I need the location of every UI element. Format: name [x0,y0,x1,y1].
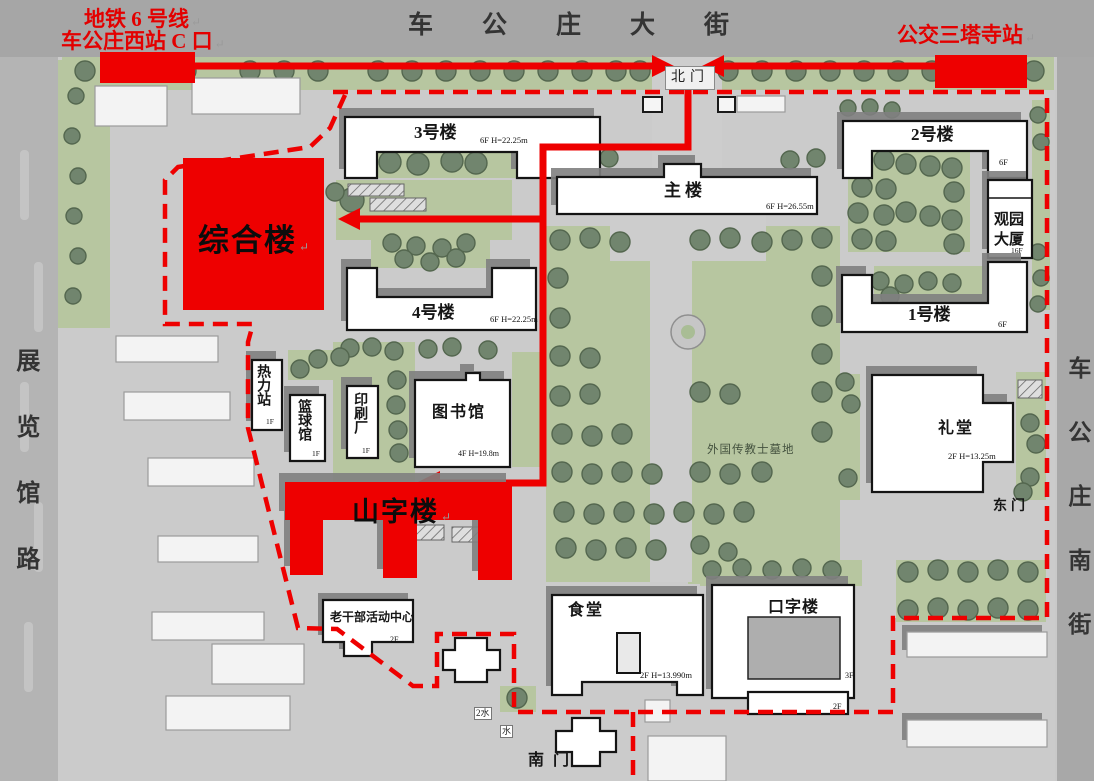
label-canteen: 食堂 [568,602,604,619]
label-b4: 4号楼 [412,304,455,322]
north-gate-pillar [718,97,735,112]
street-name-left: 展览馆路 [11,348,37,612]
label-heating: 热力站 [255,364,270,406]
label-b2: 2号楼 [911,126,954,144]
label-b1-floors: 6F [998,320,1007,329]
label-library-floors: 4F H=19.8m [458,450,499,459]
label-water-b: 水 [500,725,513,738]
bus-stop-marker [935,55,1027,88]
campus-map: 车公庄大街 展览馆路 车公庄南街 地铁 6 号线↵ 车公庄西站 C 口↵ 公交三… [0,0,1094,781]
ramp [1018,380,1042,398]
label-canteen-floors: 2F H=13.990m [640,671,692,680]
north-gate-pillar [643,97,662,112]
label-kouzi-annex-floors: 2F [833,703,841,712]
label-basketball: 篮球馆 [296,399,311,441]
gate-east: 东门 [993,499,1029,514]
label-printing: 印刷厂 [352,392,367,434]
label-b2-floors: 6F [999,158,1008,167]
label-auditorium-floors: 2F H=13.25m [948,452,996,461]
label-guanyuan: 观园大厦 [991,210,1027,251]
label-veteran: 老干部活动中心 [330,611,414,624]
label-kouzi: 口字楼 [768,599,819,616]
zonghelou-label: 综合楼↵ [198,215,311,260]
bike-shed [370,198,426,211]
label-b4-floors: 6F H=22.25m [490,315,538,324]
map-canvas [0,0,1094,781]
label-main-floors: 6F H=26.55m [766,202,814,211]
shanzilou-label: 山字楼↵ [352,490,453,529]
label-heating-floors: 1F [266,418,274,426]
return-mark-icon: ↵ [441,510,453,524]
label-veteran-floors: 2F [390,636,398,645]
return-mark-icon: ↵ [215,37,225,51]
return-mark-icon: ↵ [1025,31,1035,45]
label-library: 图书馆 [432,404,486,421]
street-name-top: 车公庄大街 [408,12,778,39]
metro-exit-label: 车公庄西站 C 口↵ [61,25,225,55]
label-printing-floors: 1F [362,447,370,455]
metro-station-marker [100,52,195,83]
bike-shed [348,184,404,196]
label-kouzi-floors: 3F [845,672,853,681]
gate-south: 南门 [528,752,578,769]
label-basketball-floors: 1F [312,450,320,458]
label-guanyuan-floors: 16F [1011,247,1023,255]
label-main: 主楼 [664,182,706,200]
label-water-a: 2水 [474,707,492,720]
bus-stop-label: 公交三塔寺站↵ [897,19,1035,49]
street-name-right: 车公庄南街 [1064,356,1089,676]
return-mark-icon: ↵ [299,240,311,254]
label-auditorium: 礼堂 [938,420,974,437]
label-cemetery: 外国传教士墓地 [707,444,795,456]
label-b3-floors: 6F H=22.25m [480,136,528,145]
label-b3: 3号楼 [414,124,457,142]
gate-north: 北门 [665,66,715,90]
label-b1: 1号楼 [908,306,951,324]
